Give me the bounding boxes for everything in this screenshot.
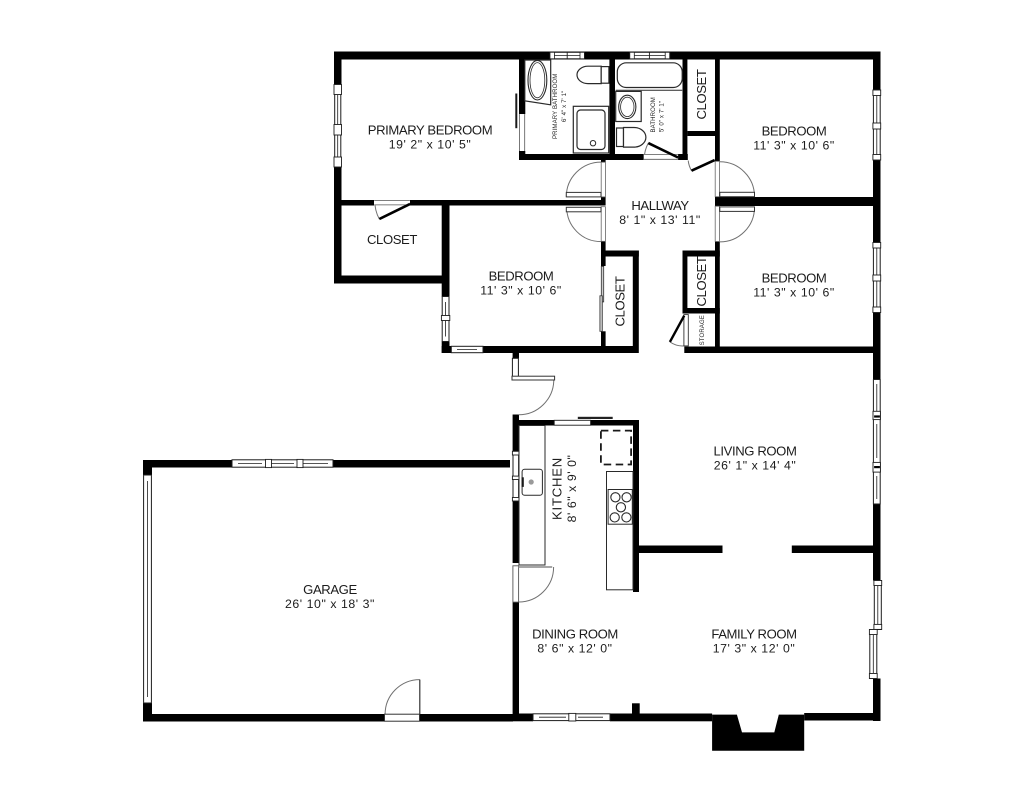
svg-text:HALLWAY: HALLWAY (631, 198, 689, 213)
svg-text:19' 2" x 10' 5": 19' 2" x 10' 5" (389, 138, 472, 152)
svg-text:8' 6" x 12' 0": 8' 6" x 12' 0" (537, 642, 612, 656)
svg-text:26' 10" x 18' 3": 26' 10" x 18' 3" (285, 597, 375, 611)
svg-text:FAMILY ROOM: FAMILY ROOM (711, 627, 796, 642)
svg-text:11' 3" x 10' 6": 11' 3" x 10' 6" (753, 286, 835, 300)
svg-text:5' 0" x 7' 1": 5' 0" x 7' 1" (660, 101, 666, 132)
svg-text:11' 3" x 10' 6": 11' 3" x 10' 6" (480, 284, 562, 298)
svg-text:LIVING ROOM: LIVING ROOM (714, 444, 797, 459)
svg-text:11' 3" x 10' 6": 11' 3" x 10' 6" (753, 139, 835, 153)
svg-text:8' 1" x 13' 11": 8' 1" x 13' 11" (619, 213, 701, 227)
svg-text:BATHROOM: BATHROOM (651, 97, 657, 132)
svg-text:CLOSET: CLOSET (694, 69, 709, 119)
svg-text:CLOSET: CLOSET (613, 276, 628, 326)
svg-text:BEDROOM: BEDROOM (762, 271, 827, 286)
svg-text:PRIMARY BEDROOM: PRIMARY BEDROOM (368, 123, 492, 138)
svg-text:26' 1" x 14' 4": 26' 1" x 14' 4" (714, 459, 797, 473)
svg-text:STORAGE: STORAGE (700, 315, 706, 345)
svg-text:BEDROOM: BEDROOM (489, 269, 554, 284)
svg-text:CLOSET: CLOSET (367, 232, 417, 247)
svg-text:PRIMARY BATHROOM: PRIMARY BATHROOM (553, 74, 559, 139)
svg-text:KITCHEN: KITCHEN (549, 457, 564, 520)
svg-text:DINING ROOM: DINING ROOM (532, 627, 618, 642)
svg-text:GARAGE: GARAGE (303, 582, 357, 597)
svg-text:17' 3" x 12' 0": 17' 3" x 12' 0" (713, 642, 796, 656)
svg-text:6' 4" x 7' 1": 6' 4" x 7' 1" (562, 91, 568, 122)
svg-text:8' 6" x 9' 0": 8' 6" x 9' 0" (565, 455, 579, 523)
svg-text:CLOSET: CLOSET (694, 256, 709, 306)
svg-text:BEDROOM: BEDROOM (762, 124, 827, 139)
